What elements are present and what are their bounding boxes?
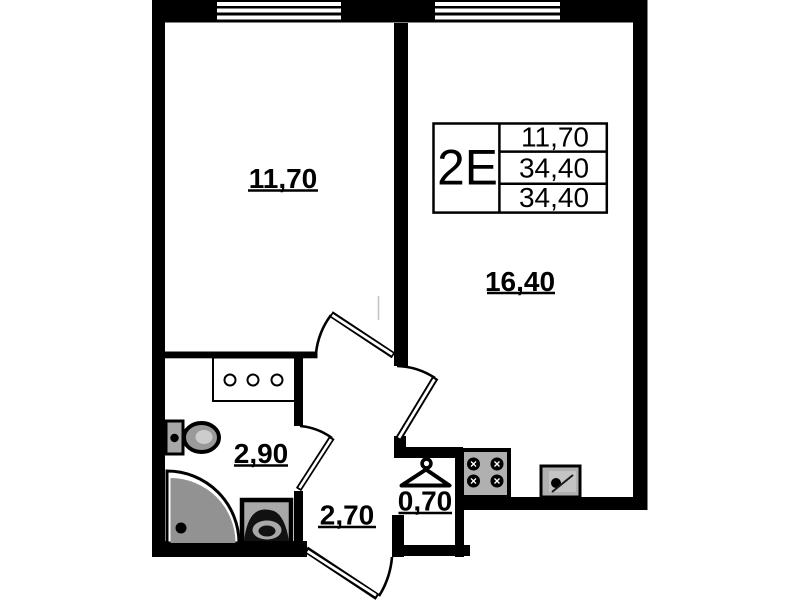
svg-text:34,40: 34,40 <box>519 153 589 184</box>
svg-text:2E: 2E <box>437 139 498 195</box>
svg-text:34,40: 34,40 <box>519 182 589 213</box>
svg-text:11,70: 11,70 <box>521 122 589 153</box>
